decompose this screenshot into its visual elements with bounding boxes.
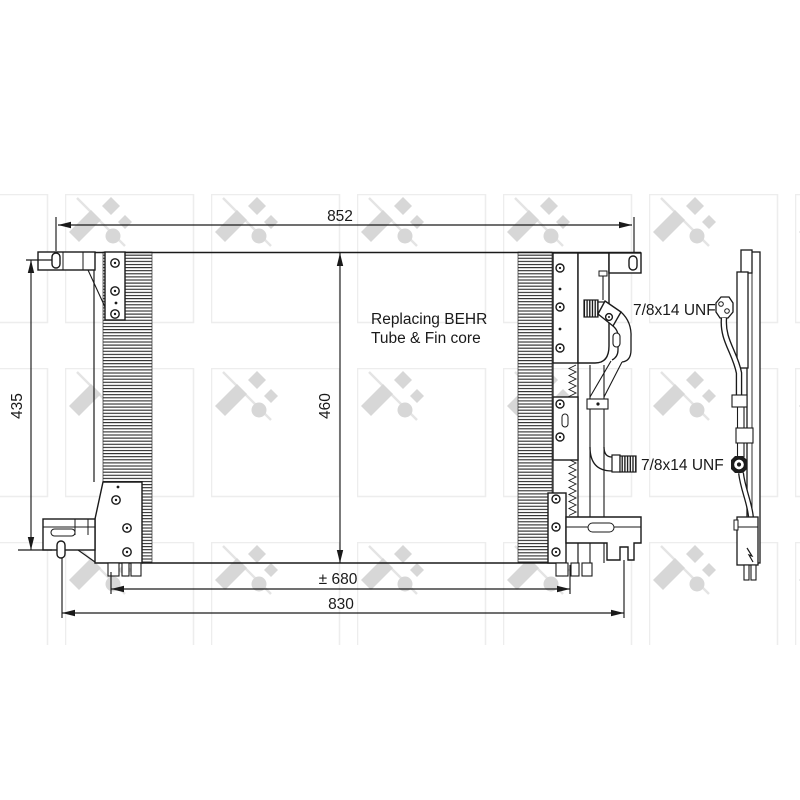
dim-mounting-width-label: ± 680 <box>319 571 358 588</box>
dim-bottom-width-label: 830 <box>328 596 354 613</box>
condenser-technical-drawing-page: 852 435 460 ± 680 830 Replacing BEHR Tub… <box>0 0 800 800</box>
fitting-spec-top-label: 7/8x14 UNF <box>633 302 716 319</box>
technical-drawing-canvas: 852 435 460 ± 680 830 Replacing BEHR Tub… <box>0 0 800 800</box>
side-bottom-fitting <box>731 456 747 473</box>
replacement-note-line2: Tube & Fin core <box>371 330 481 347</box>
right-fin-core <box>518 252 552 563</box>
dim-left-height-label: 435 <box>9 393 26 419</box>
replacement-note-line1: Replacing BEHR <box>371 311 487 328</box>
side-top-fitting <box>716 297 733 318</box>
fitting-spec-bottom-label: 7/8x14 UNF <box>641 457 724 474</box>
dim-overall-width-label: 852 <box>327 208 353 225</box>
dim-core-height-label: 460 <box>317 393 334 419</box>
